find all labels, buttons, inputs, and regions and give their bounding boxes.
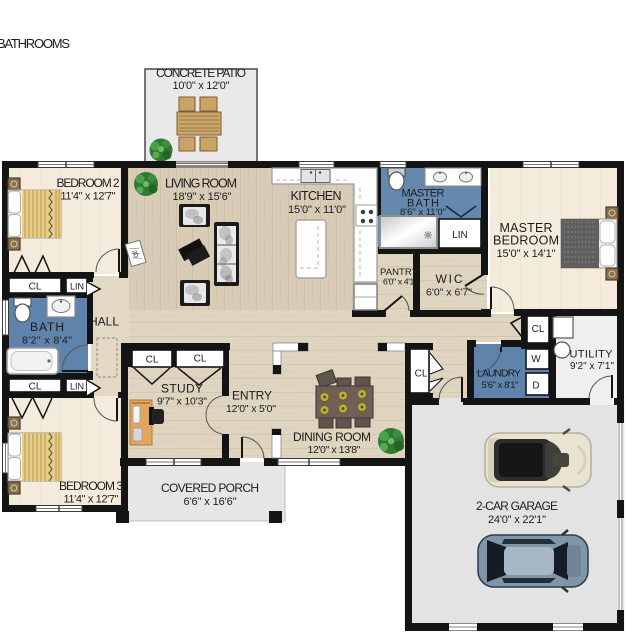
svg-text:BEDROOM: BEDROOM	[493, 234, 559, 248]
svg-text:BEDROOM 3: BEDROOM 3	[59, 479, 123, 493]
svg-text:18'9" x 15'6": 18'9" x 15'6"	[173, 191, 232, 203]
svg-text:15'0" x 14'1": 15'0" x 14'1"	[497, 248, 556, 260]
svg-text:CONCRETE PATIO: CONCRETE PATIO	[156, 66, 246, 80]
svg-text:9'2" x 7'1": 9'2" x 7'1"	[570, 361, 614, 372]
svg-text:11'4" x 12'7": 11'4" x 12'7"	[64, 494, 119, 506]
svg-text:UTILITY: UTILITY	[570, 349, 614, 361]
svg-text:WIC: WIC	[436, 272, 463, 286]
svg-text:9'7" x 10'3": 9'7" x 10'3"	[157, 396, 207, 408]
svg-text:D: D	[532, 381, 539, 392]
svg-text:ENTRY: ENTRY	[232, 389, 272, 403]
svg-text:6'0" x 4'1": 6'0" x 4'1"	[383, 277, 417, 287]
svg-text:8'2" x 8'4": 8'2" x 8'4"	[22, 335, 72, 347]
svg-text:12'0" x 13'8": 12'0" x 13'8"	[308, 444, 361, 456]
svg-text:KITCHEN: KITCHEN	[291, 189, 342, 203]
svg-text:LIN: LIN	[70, 282, 84, 292]
svg-text:LAUNDRY: LAUNDRY	[477, 368, 521, 380]
svg-text:BATHROOMS: BATHROOMS	[0, 36, 70, 51]
svg-text:BEDROOM 2: BEDROOM 2	[57, 176, 120, 190]
svg-text:8'6" x 11'0": 8'6" x 11'0"	[400, 207, 446, 218]
svg-text:5'6" x 8'1": 5'6" x 8'1"	[482, 380, 519, 391]
svg-text:10'0" x 12'0": 10'0" x 12'0"	[173, 80, 230, 92]
svg-text:LIN: LIN	[452, 230, 468, 241]
svg-text:6'6" x 16'6": 6'6" x 16'6"	[184, 496, 237, 508]
svg-text:BATH: BATH	[30, 320, 64, 334]
svg-text:2-CAR GARAGE: 2-CAR GARAGE	[476, 499, 558, 513]
svg-text:COVERED PORCH: COVERED PORCH	[161, 481, 259, 495]
svg-text:LIVING ROOM: LIVING ROOM	[165, 177, 237, 191]
svg-text:CL: CL	[29, 382, 42, 393]
svg-text:11'4" x 12'7": 11'4" x 12'7"	[61, 191, 116, 203]
svg-text:DINING ROOM: DINING ROOM	[293, 430, 371, 444]
svg-text:CL: CL	[146, 355, 159, 366]
svg-text:CL: CL	[532, 324, 545, 335]
svg-text:HALL: HALL	[89, 315, 119, 329]
svg-text:6'0" x 6'7": 6'0" x 6'7"	[426, 287, 472, 299]
svg-text:LIN: LIN	[70, 382, 84, 392]
svg-text:15'0" x 11'0": 15'0" x 11'0"	[288, 204, 346, 216]
svg-text:24'0" x 22'1": 24'0" x 22'1"	[488, 514, 546, 526]
svg-text:CL: CL	[29, 282, 42, 293]
svg-text:CL: CL	[415, 369, 428, 380]
svg-text:CL: CL	[194, 354, 207, 365]
svg-text:W: W	[531, 354, 541, 365]
svg-text:12'0" x 5'0": 12'0" x 5'0"	[226, 403, 276, 415]
svg-text:STUDY: STUDY	[161, 382, 203, 396]
